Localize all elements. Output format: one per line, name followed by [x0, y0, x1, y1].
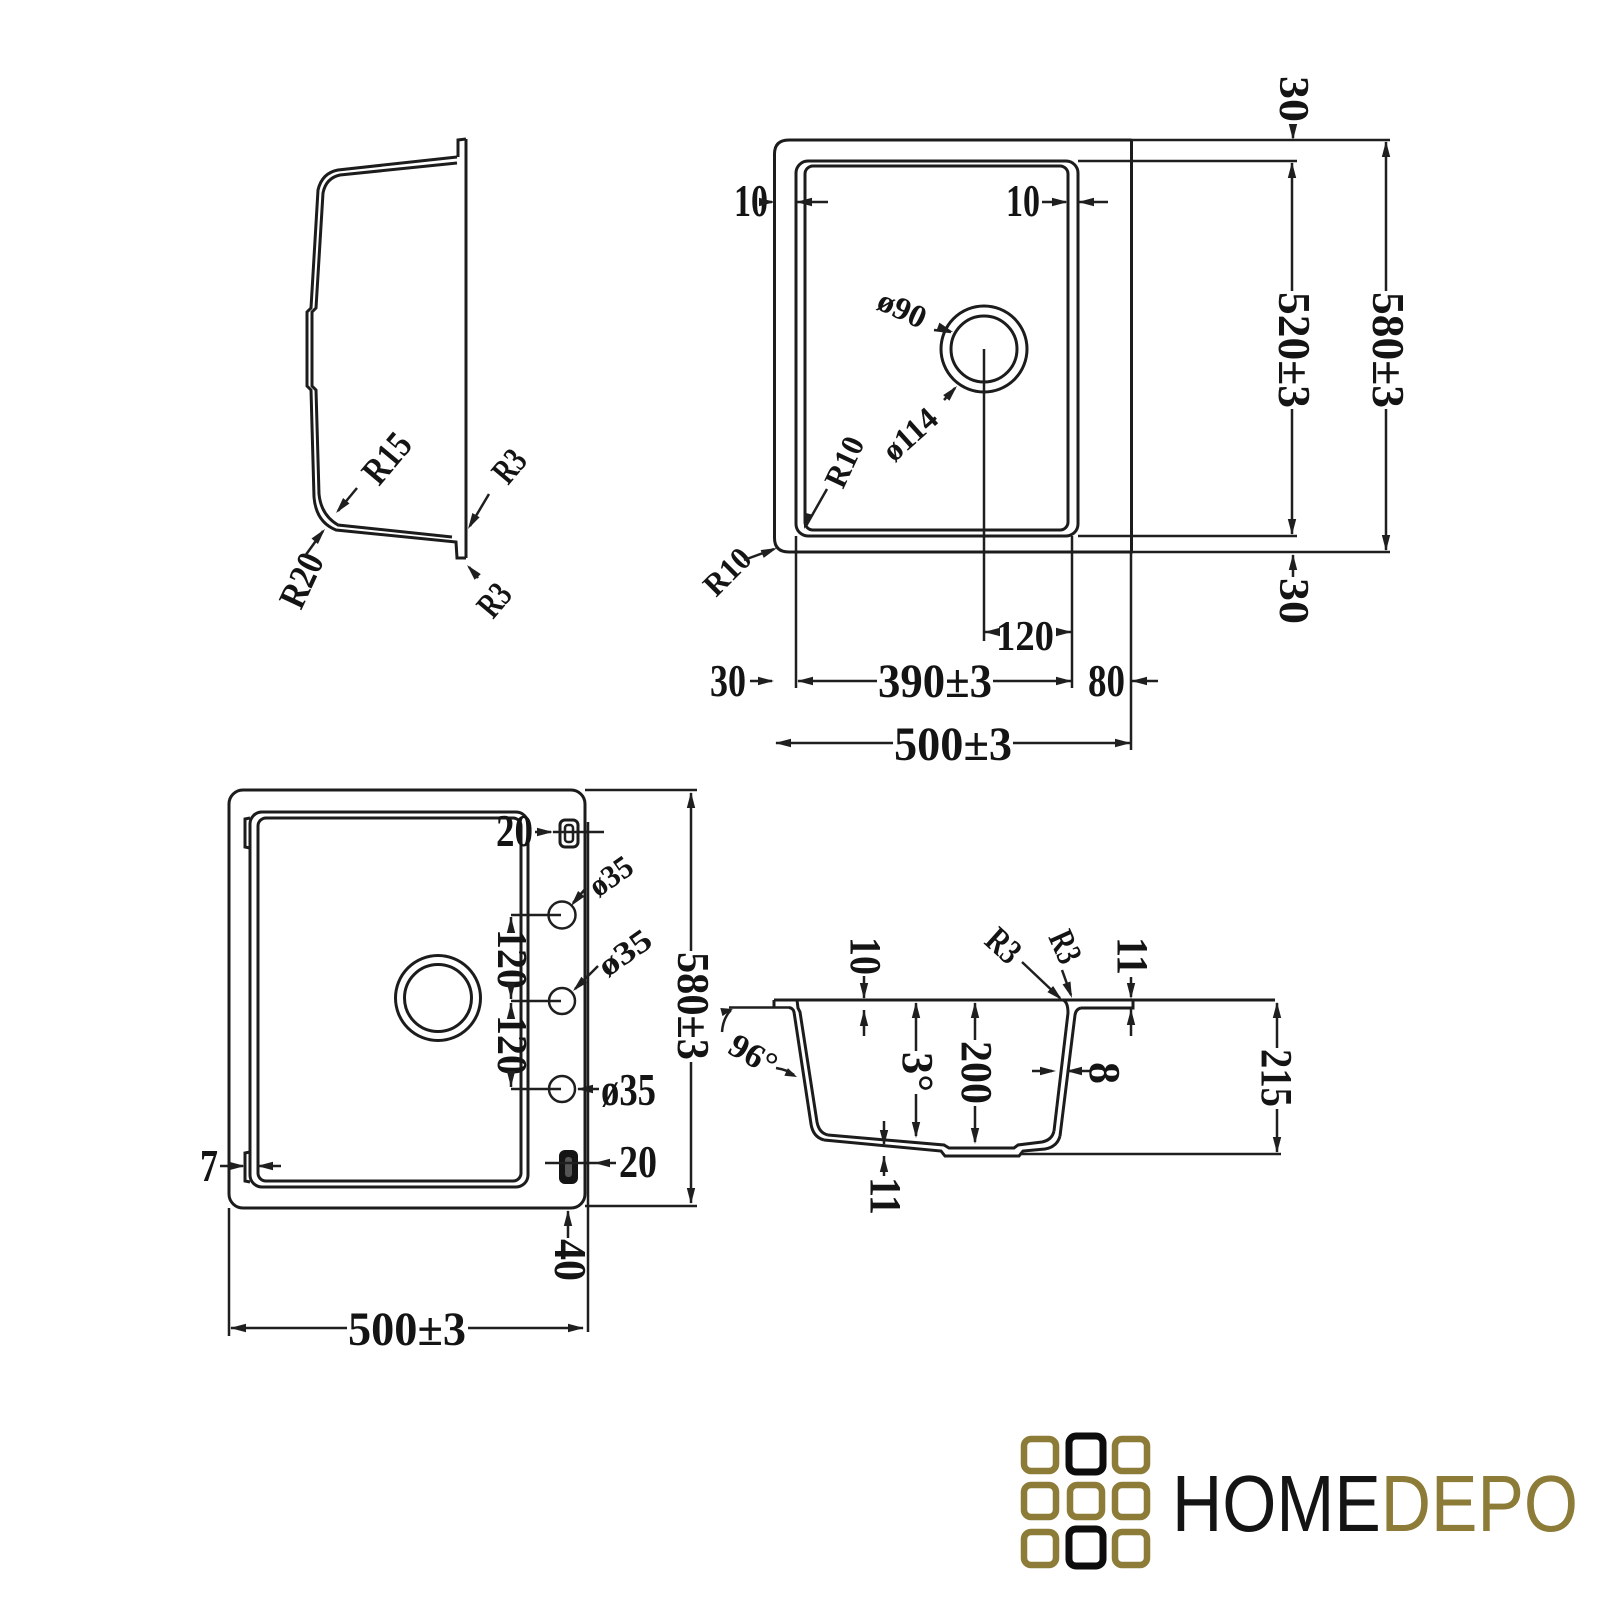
svg-text:20: 20: [619, 1137, 657, 1187]
svg-text:20: 20: [496, 806, 533, 856]
svg-text:40: 40: [545, 1239, 595, 1281]
svg-text:215: 215: [1252, 1049, 1301, 1107]
svg-text:3°: 3°: [893, 1052, 942, 1092]
svg-text:10: 10: [1006, 176, 1040, 226]
svg-text:80: 80: [1088, 656, 1125, 706]
svg-text:520±3: 520±3: [1269, 292, 1319, 408]
svg-text:11: 11: [1108, 937, 1157, 975]
svg-text:30: 30: [1270, 76, 1316, 122]
svg-text:580±3: 580±3: [668, 952, 718, 1060]
svg-text:8: 8: [1080, 1062, 1129, 1084]
svg-text:390±3: 390±3: [878, 655, 992, 708]
svg-text:580±3: 580±3: [1363, 292, 1413, 408]
svg-text:ø35: ø35: [601, 1065, 656, 1115]
svg-text:120: 120: [996, 614, 1054, 660]
svg-text:7: 7: [200, 1141, 218, 1191]
svg-text:200: 200: [952, 1041, 1001, 1104]
svg-text:30: 30: [1270, 578, 1316, 624]
svg-text:500±3: 500±3: [348, 1303, 466, 1356]
svg-text:500±3: 500±3: [894, 718, 1012, 771]
svg-text:HOMEDEPO: HOMEDEPO: [1172, 1458, 1578, 1548]
svg-text:11: 11: [861, 1177, 910, 1215]
svg-text:120: 120: [488, 929, 534, 989]
svg-text:30: 30: [710, 656, 746, 706]
svg-text:10: 10: [841, 937, 890, 975]
svg-text:120: 120: [488, 1015, 534, 1075]
